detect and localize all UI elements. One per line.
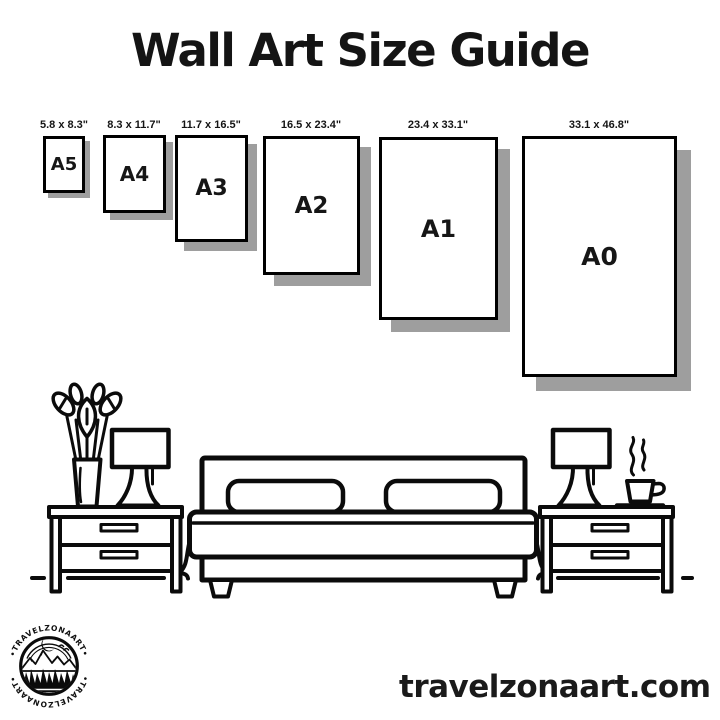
size-dimensions-a0: 33.1 x 46.8"	[569, 119, 629, 131]
size-name-a1: A1	[421, 215, 456, 243]
size-box-a0: A0	[522, 136, 677, 377]
bed-icon	[180, 458, 546, 597]
size-name-a2: A2	[295, 193, 329, 219]
size-name-a5: A5	[51, 154, 77, 175]
bedroom-illustration	[0, 380, 720, 610]
duvet	[190, 512, 537, 557]
size-box-a4: A4	[103, 135, 166, 213]
wall-art-size-guide-infographic: Wall Art Size Guide 5.8 x 8.3" 8.3 x 11.…	[0, 0, 720, 720]
size-dimensions-a5: 5.8 x 8.3"	[40, 119, 88, 131]
page-title: Wall Art Size Guide	[0, 24, 720, 77]
size-box-a3: A3	[175, 135, 248, 242]
size-dimensions-a3: 11.7 x 16.5"	[181, 119, 241, 131]
size-name-a4: A4	[120, 162, 149, 186]
pillow-left	[228, 481, 343, 512]
size-dimensions-a4: 8.3 x 11.7"	[107, 119, 161, 131]
travelzonaart-logo-badge: •TRAVELZONAART• •TRAVELZONAART•	[4, 620, 94, 712]
size-name-a0: A0	[581, 242, 618, 271]
table-lamp-right-icon	[553, 430, 610, 506]
size-dimensions-a1: 23.4 x 33.1"	[408, 119, 468, 131]
coffee-cup-icon	[617, 438, 664, 506]
pillow-right	[386, 481, 500, 512]
size-dimensions-a2: 16.5 x 23.4"	[281, 119, 341, 131]
size-box-a5: A5	[43, 136, 85, 193]
table-lamp-left-icon	[112, 430, 169, 506]
size-name-a3: A3	[195, 176, 227, 201]
website-url: travelzonaart.com	[399, 669, 711, 705]
size-box-a2: A2	[263, 136, 360, 275]
size-box-a1: A1	[379, 137, 498, 320]
